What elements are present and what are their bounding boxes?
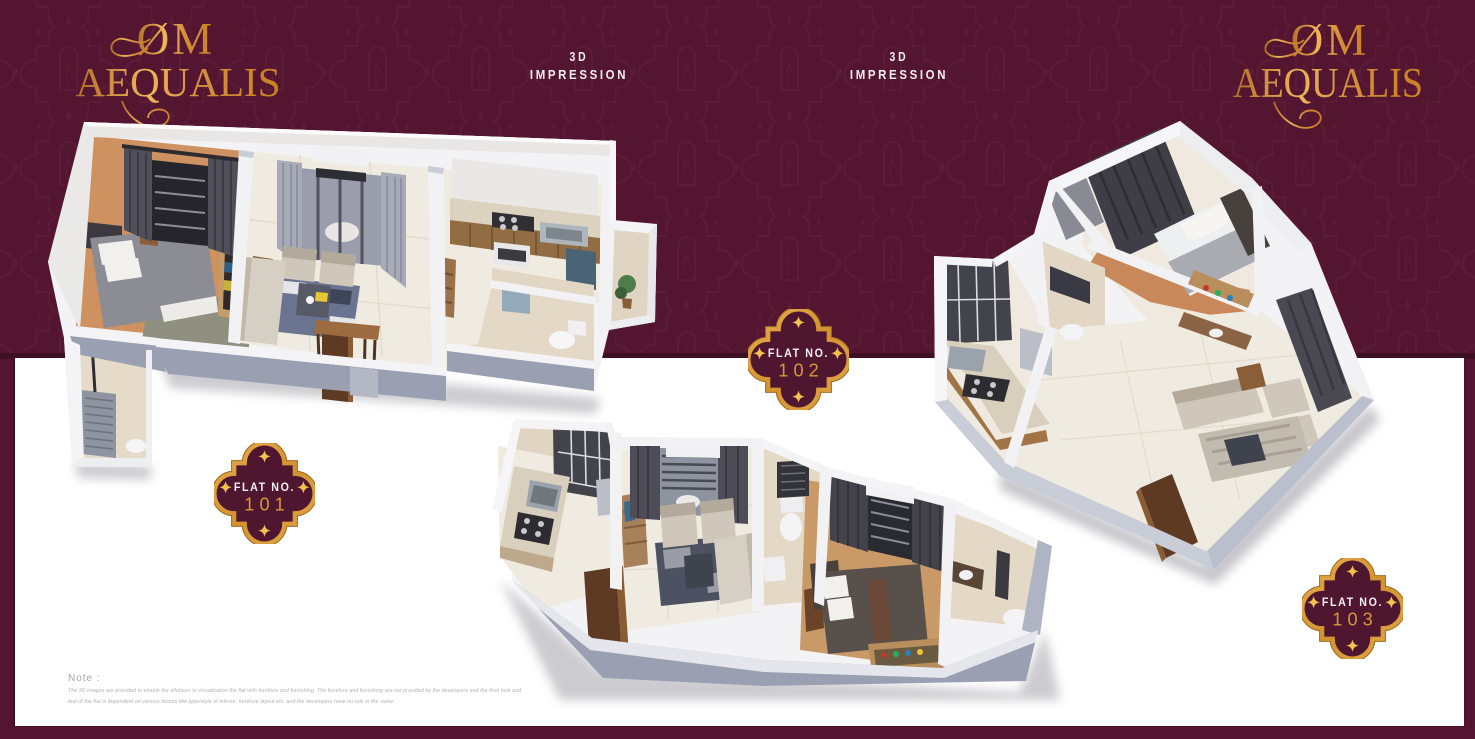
svg-text:FLAT NO.: FLAT NO. — [1322, 596, 1383, 609]
svg-text:FLAT NO.: FLAT NO. — [768, 347, 829, 360]
svg-text:103: 103 — [1332, 610, 1377, 630]
svg-text:FLAT NO.: FLAT NO. — [234, 481, 295, 494]
svg-text:101: 101 — [244, 495, 289, 515]
svg-text:102: 102 — [778, 361, 823, 381]
